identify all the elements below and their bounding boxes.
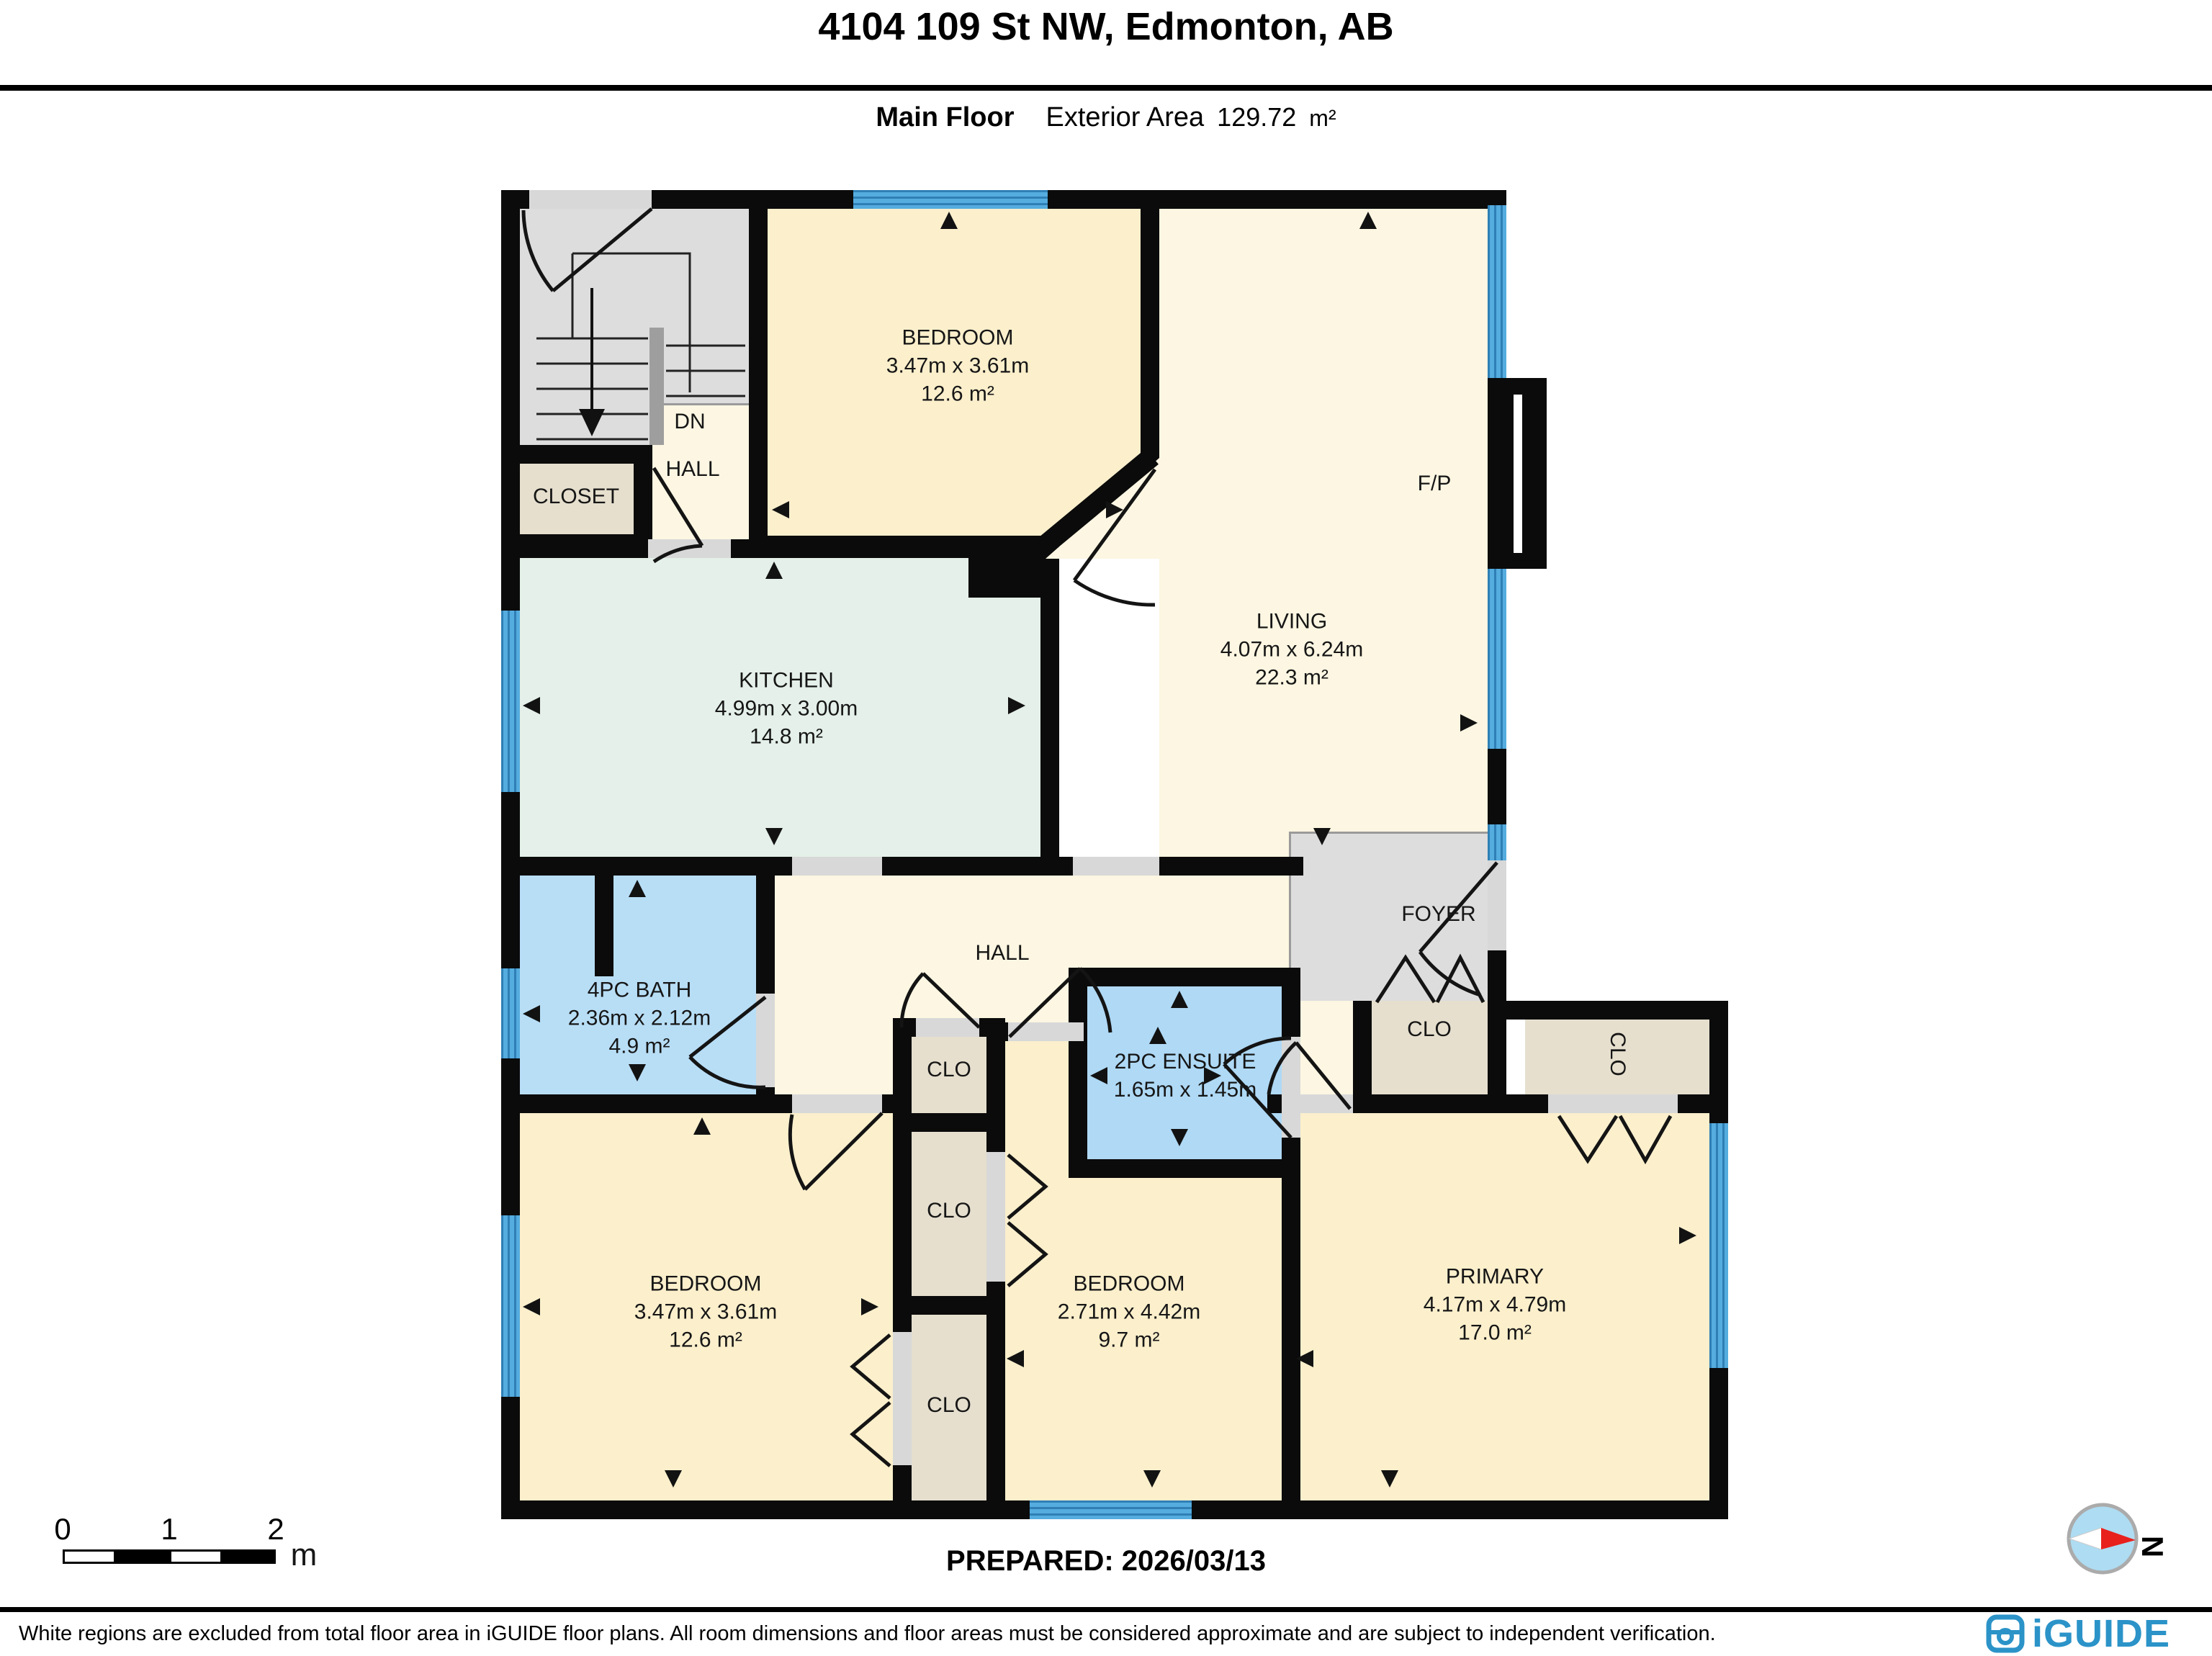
label-clo-primary: CLO [1605,1032,1629,1076]
room-name: 2PC ENSUITE [1114,1048,1256,1076]
bifold-door-icon [853,958,1671,1466]
dimension-arrow-icon [665,1470,682,1488]
dimension-arrow-icon [1171,991,1188,1008]
label-hall-upper: HALL [665,457,719,482]
room-area: 9.7 m² [1058,1326,1200,1354]
dimension-arrow-icon [1359,212,1377,229]
room-name: PRIMARY [1424,1263,1566,1291]
dimension-arrow-icon [1143,1470,1161,1488]
room-dims: 4.17m x 4.79m [1424,1291,1566,1319]
floorplan-page: 4104 109 St NW, Edmonton, AB Main Floor … [0,0,2212,1656]
scale-tick-0: 0 [52,1512,73,1547]
room-dims: 4.07m x 6.24m [1220,636,1363,664]
dimension-arrow-icon [629,1064,646,1081]
dimension-arrow-icon [765,562,783,579]
room-area: 22.3 m² [1220,664,1363,692]
room-dims: 2.36m x 2.12m [568,1004,711,1032]
dimension-arrow-icon [765,828,783,845]
room-label-bedroom-top: BEDROOM 3.47m x 3.61m 12.6 m² [886,324,1029,408]
dimension-arrow-icon [861,1298,878,1315]
dimension-arrow-icon [629,880,646,897]
footer-divider [0,1607,2212,1612]
label-clo-middle: CLO [927,1199,971,1223]
dimension-arrow-icon [1679,1227,1696,1244]
room-area: 4.9 m² [568,1032,711,1061]
room-dims: 4.99m x 3.00m [715,695,858,723]
label-clo-bottom: CLO [927,1393,971,1418]
dimension-arrow-icon [1381,1470,1398,1488]
room-label-ensuite: 2PC ENSUITE 1.65m x 1.45m [1114,1048,1256,1104]
room-dims: 2.71m x 4.42m [1058,1298,1200,1326]
compass-north-label: N [2135,1536,2170,1557]
dimension-arrow-icon [1007,1350,1024,1367]
room-dims: 1.65m x 1.45m [1114,1076,1256,1104]
label-clo-foyer: CLO [1407,1017,1452,1042]
dimension-arrow-icon [1313,828,1331,845]
prepared-date: PREPARED: 2026/03/13 [0,1545,2212,1578]
room-label-bath: 4PC BATH 2.36m x 2.12m 4.9 m² [568,976,711,1061]
dimension-arrow-icon [1171,1129,1188,1146]
label-dn: DN [674,410,705,434]
iguide-logo: iGUIDE [1984,1611,2170,1656]
room-name: 4PC BATH [568,976,711,1004]
dimension-arrow-icon [523,1005,540,1022]
dimension-arrow-icon [1149,1027,1166,1044]
stair-down-arrow-icon [579,288,605,436]
label-hall: HALL [975,941,1029,966]
iguide-logo-icon [1984,1613,2026,1655]
dimension-arrow-icon [1090,1067,1107,1084]
label-fireplace: F/P [1418,472,1452,496]
dimension-arrow-icon [1106,501,1123,518]
dimension-arrow-icon [1460,714,1478,732]
label-foyer: FOYER [1401,902,1475,927]
room-label-kitchen: KITCHEN 4.99m x 3.00m 14.8 m² [715,667,858,751]
dimension-arrow-icon [772,501,789,518]
scale-tick-1: 1 [158,1512,180,1547]
label-closet: CLOSET [533,485,619,509]
dimension-arrow-icon [1008,697,1025,714]
stair-treads [536,253,745,439]
room-name: BEDROOM [634,1270,777,1298]
room-area: 14.8 m² [715,723,858,751]
room-area: 12.6 m² [634,1326,777,1354]
room-label-bedroom-left: BEDROOM 3.47m x 3.61m 12.6 m² [634,1270,777,1354]
dimension-arrow-icon [523,697,540,714]
iguide-logo-text: iGUIDE [2032,1611,2170,1656]
dimension-arrow-icon [1296,1350,1313,1367]
room-name: BEDROOM [886,324,1029,352]
plan-linework-overlay [0,0,2212,1656]
dimension-arrow-icon [693,1117,711,1135]
room-name: KITCHEN [715,667,858,695]
room-dims: 3.47m x 3.61m [886,352,1029,380]
scale-tick-2: 2 [265,1512,287,1547]
footer-disclaimer: White regions are excluded from total fl… [19,1622,1716,1646]
room-label-bedroom-middle: BEDROOM 2.71m x 4.42m 9.7 m² [1058,1270,1200,1354]
label-clo-hall: CLO [927,1058,971,1082]
room-dims: 3.47m x 3.61m [634,1298,777,1326]
room-name: LIVING [1220,608,1363,636]
room-name: BEDROOM [1058,1270,1200,1298]
compass: N [2061,1499,2169,1585]
room-area: 17.0 m² [1424,1319,1566,1347]
dimension-arrow-icon [940,212,958,229]
room-area: 12.6 m² [886,380,1029,408]
room-label-primary: PRIMARY 4.17m x 4.79m 17.0 m² [1424,1263,1566,1347]
dimension-arrow-icon [523,1298,540,1315]
room-label-living: LIVING 4.07m x 6.24m 22.3 m² [1220,608,1363,692]
